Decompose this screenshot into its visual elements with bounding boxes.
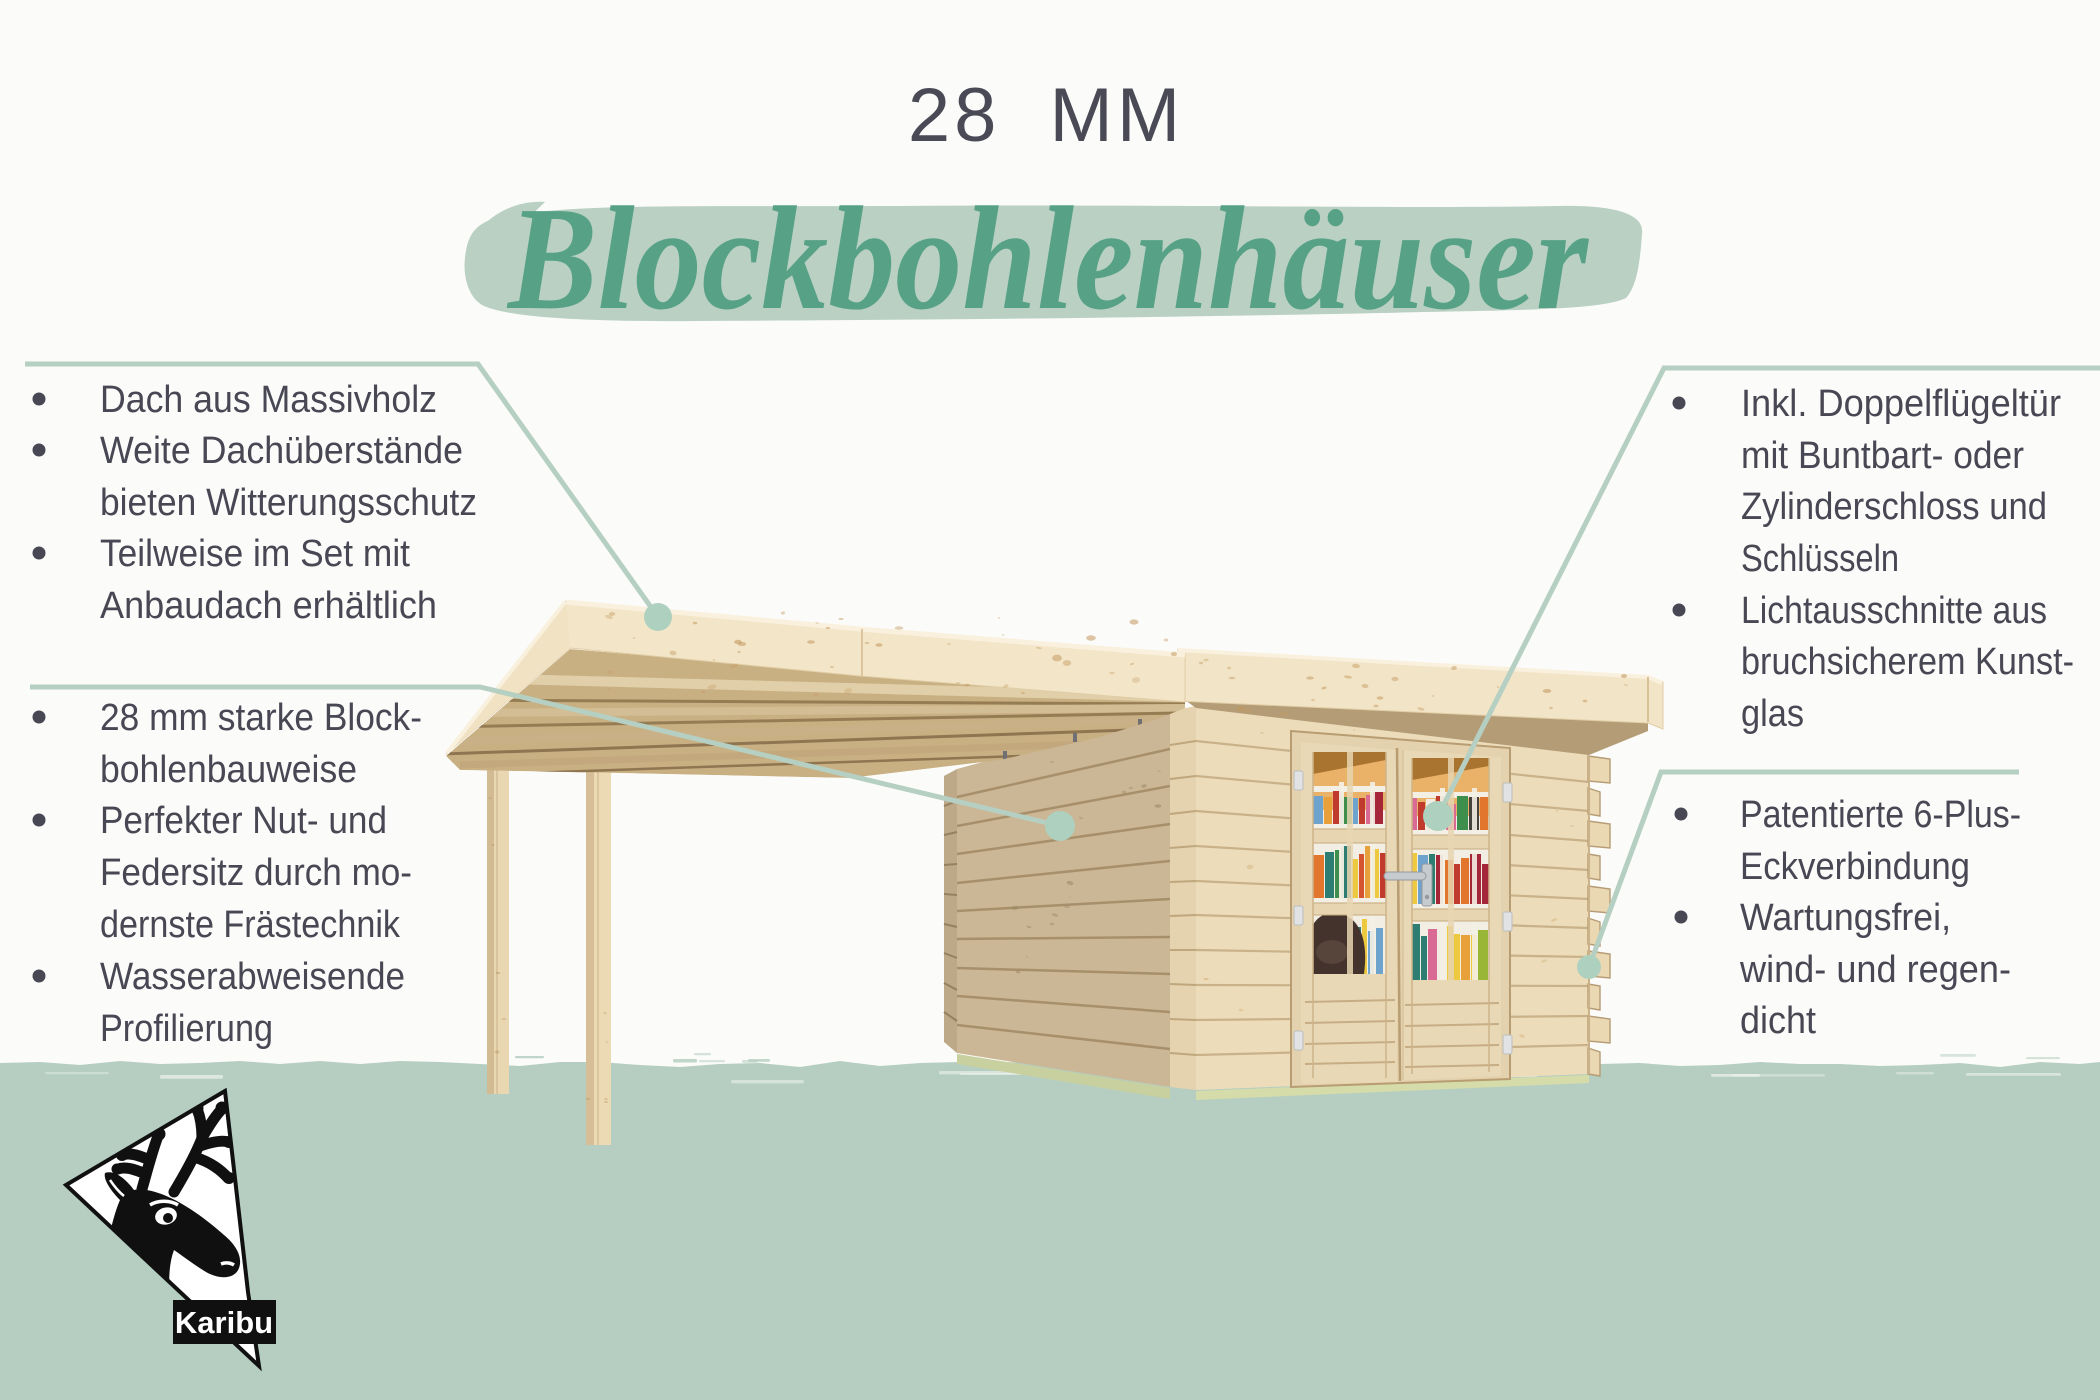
svg-text:28 MM: 28 MM xyxy=(908,73,1184,158)
svg-text:glas: glas xyxy=(1741,693,1804,735)
svg-text:Zylinderschloss und: Zylinderschloss und xyxy=(1741,486,2047,528)
svg-text:Wasserabweisende: Wasserabweisende xyxy=(100,956,405,998)
svg-text:Teilweise im Set mit: Teilweise im Set mit xyxy=(100,533,410,575)
svg-text:Eckverbindung: Eckverbindung xyxy=(1740,846,1970,888)
svg-text:dicht: dicht xyxy=(1740,1000,1816,1042)
svg-text:mit Buntbart- oder: mit Buntbart- oder xyxy=(1741,435,2024,477)
svg-text:Inkl. Doppelflügeltür: Inkl. Doppelflügeltür xyxy=(1741,383,2061,425)
svg-text:Wartungsfrei,: Wartungsfrei, xyxy=(1740,897,1951,939)
svg-text:wind- und regen-: wind- und regen- xyxy=(1739,949,2011,991)
svg-text:dernste Frästechnik: dernste Frästechnik xyxy=(100,904,401,946)
svg-text:bieten Witterungsschutz: bieten Witterungsschutz xyxy=(100,482,477,524)
svg-text:Schlüsseln: Schlüsseln xyxy=(1741,538,1899,580)
svg-text:Federsitz durch mo-: Federsitz durch mo- xyxy=(100,852,412,894)
svg-text:Blockbohlenhäuser: Blockbohlenhäuser xyxy=(506,177,1589,341)
svg-text:Perfekter Nut- und: Perfekter Nut- und xyxy=(100,800,387,842)
svg-text:Dach aus Massivholz: Dach aus Massivholz xyxy=(100,379,437,421)
svg-text:Lichtausschnitte aus: Lichtausschnitte aus xyxy=(1741,590,2047,632)
svg-text:bruchsicherem Kunst-: bruchsicherem Kunst- xyxy=(1741,641,2074,683)
svg-text:Karibu: Karibu xyxy=(175,1305,273,1340)
svg-text:28 mm starke Block-: 28 mm starke Block- xyxy=(100,697,422,739)
svg-text:bohlenbauweise: bohlenbauweise xyxy=(100,749,357,791)
svg-text:Profilierung: Profilierung xyxy=(100,1008,273,1050)
svg-text:Patentierte 6-Plus-: Patentierte 6-Plus- xyxy=(1740,794,2021,836)
svg-text:Anbaudach erhältlich: Anbaudach erhältlich xyxy=(100,585,437,627)
svg-text:Weite Dachüberstände: Weite Dachüberstände xyxy=(100,430,463,472)
